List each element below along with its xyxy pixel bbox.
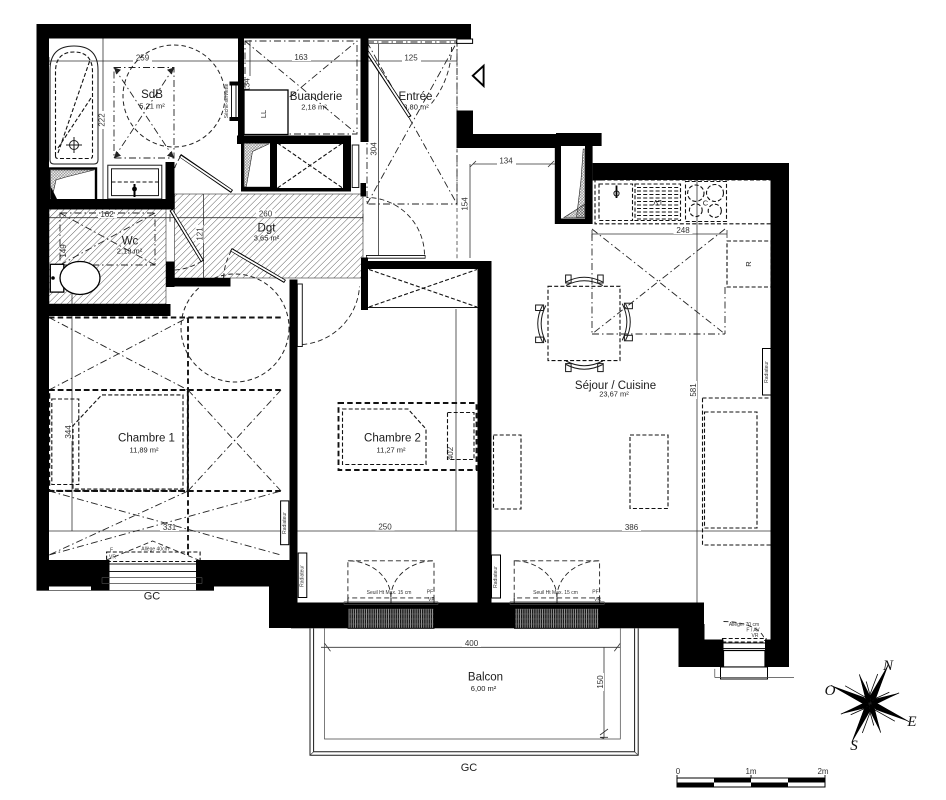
svg-text:260: 260 — [259, 210, 273, 219]
svg-text:222: 222 — [98, 113, 107, 127]
svg-text:Buanderie: Buanderie — [290, 91, 342, 103]
svg-text:23,67 m²: 23,67 m² — [599, 390, 629, 399]
svg-text:2m: 2m — [817, 767, 828, 776]
svg-text:SdB: SdB — [141, 89, 163, 101]
svg-text:GC: GC — [144, 591, 161, 603]
svg-text:11,27 m²: 11,27 m² — [376, 446, 406, 455]
svg-text:F: F — [110, 548, 113, 554]
svg-text:331: 331 — [163, 523, 177, 532]
svg-text:163: 163 — [294, 53, 308, 62]
svg-text:162: 162 — [100, 210, 114, 219]
svg-text:Balcon: Balcon — [468, 672, 503, 684]
svg-text:GC: GC — [461, 762, 478, 774]
svg-text:PF: PF — [592, 590, 598, 596]
svg-text:Seuil Ht Max. 15 cm: Seuil Ht Max. 15 cm — [367, 590, 412, 596]
svg-text:O: O — [825, 683, 836, 699]
svg-text:Radiateur: Radiateur — [300, 565, 306, 587]
svg-text:Seuil Ht Max. 15 cm: Seuil Ht Max. 15 cm — [533, 590, 578, 596]
svg-text:S: S — [850, 738, 858, 754]
svg-text:581: 581 — [689, 383, 698, 397]
svg-text:C: C — [703, 199, 709, 208]
svg-text:Chambre 1: Chambre 1 — [118, 433, 175, 445]
svg-text:LL: LL — [259, 110, 268, 118]
svg-text:121: 121 — [196, 227, 205, 241]
svg-text:5,21 m²: 5,21 m² — [139, 102, 165, 111]
svg-text:VR: VR — [752, 633, 759, 639]
svg-text:E: E — [906, 714, 916, 730]
svg-text:259: 259 — [136, 54, 150, 63]
svg-text:2,18 m²: 2,18 m² — [301, 103, 327, 112]
svg-text:304: 304 — [370, 142, 379, 156]
svg-text:Sèche-serviette: Sèche-serviette — [224, 83, 230, 118]
svg-text:344: 344 — [64, 425, 73, 439]
svg-text:250: 250 — [378, 523, 392, 532]
svg-text:6,00 m²: 6,00 m² — [471, 684, 497, 693]
svg-text:1m: 1m — [745, 767, 756, 776]
svg-text:3,65 m²: 3,65 m² — [254, 234, 280, 243]
svg-text:248: 248 — [676, 226, 690, 235]
svg-text:VR: VR — [109, 555, 116, 561]
svg-text:400: 400 — [465, 639, 479, 648]
svg-text:125: 125 — [404, 54, 418, 63]
svg-text:11,89 m²: 11,89 m² — [129, 446, 159, 455]
svg-text:386: 386 — [625, 523, 639, 532]
svg-text:2,19 m²: 2,19 m² — [117, 247, 143, 256]
svg-text:R: R — [744, 261, 753, 267]
svg-text:Radiateur: Radiateur — [493, 566, 499, 588]
svg-text:134: 134 — [499, 157, 513, 166]
svg-text:Radiateur: Radiateur — [764, 361, 770, 383]
svg-text:LV: LV — [653, 198, 662, 207]
svg-text:150: 150 — [596, 675, 605, 689]
svg-text:Chambre 2: Chambre 2 — [364, 433, 421, 445]
svg-text:0: 0 — [676, 767, 681, 776]
svg-text:PF: PF — [427, 590, 433, 596]
svg-text:154: 154 — [461, 197, 470, 211]
svg-text:Radiateur: Radiateur — [282, 512, 288, 534]
svg-text:Allège 40cm: Allège 40cm — [141, 547, 169, 553]
svg-text:N: N — [882, 658, 894, 674]
svg-text:Entrée: Entrée — [399, 91, 433, 103]
